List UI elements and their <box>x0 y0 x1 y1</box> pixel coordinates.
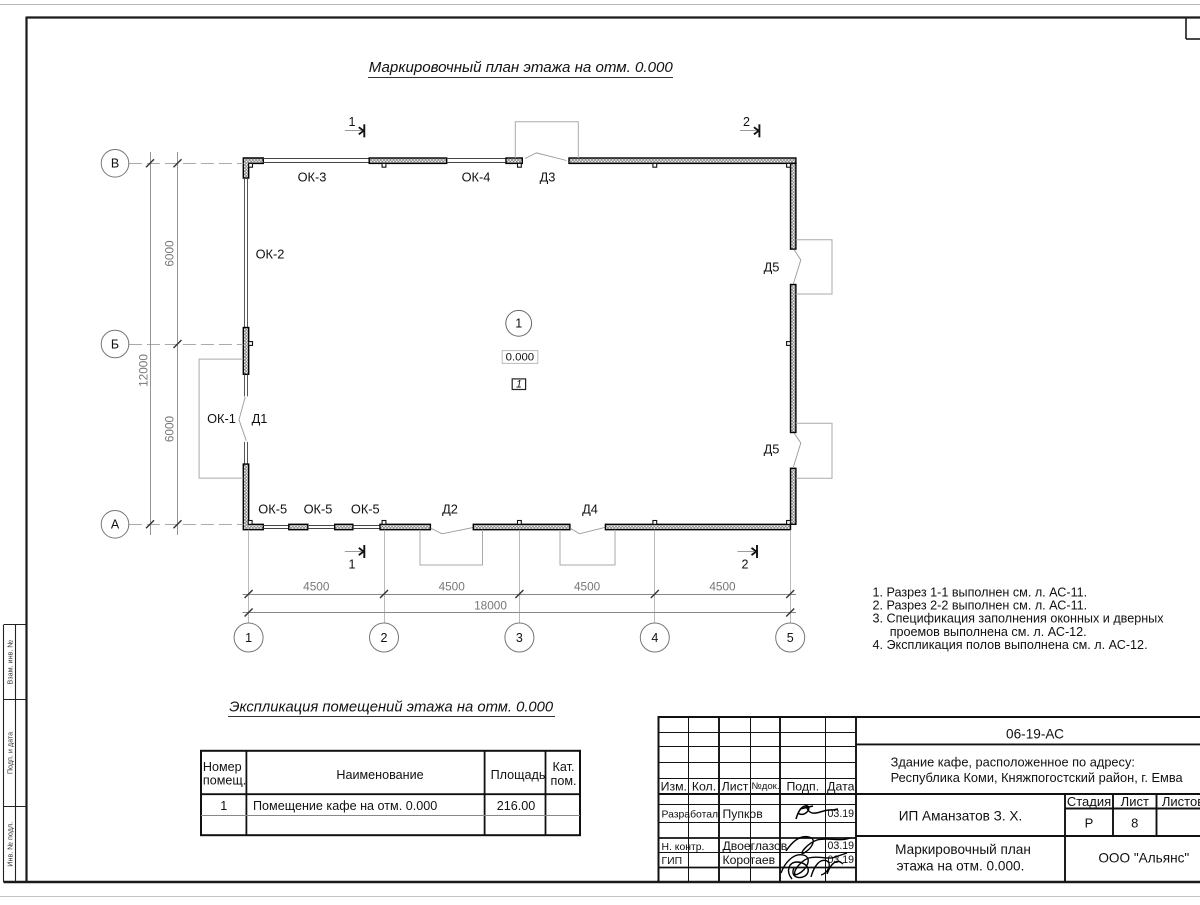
svg-text:Маркировочный план: Маркировочный план <box>895 842 1031 857</box>
svg-text:ОК-4: ОК-4 <box>462 170 491 185</box>
svg-text:ОК-5: ОК-5 <box>351 502 380 517</box>
svg-text:Экспликация помещений этажа на: Экспликация помещений этажа на отм. 0.00… <box>229 700 554 716</box>
svg-text:ОК-5: ОК-5 <box>258 502 287 517</box>
svg-text:Стадия: Стадия <box>1067 794 1111 809</box>
svg-text:Листов: Листов <box>1162 794 1200 809</box>
svg-text:4500: 4500 <box>439 580 466 594</box>
svg-text:5: 5 <box>787 631 794 645</box>
svg-text:1: 1 <box>515 317 522 331</box>
svg-text:ИП Аманзатов З. Х.: ИП Аманзатов З. Х. <box>899 809 1023 824</box>
svg-text:Разработал: Разработал <box>662 809 719 821</box>
svg-text:4. Экспликация полов выполнена: 4. Экспликация полов выполнена см. л. АС… <box>873 638 1148 652</box>
svg-text:2: 2 <box>381 631 388 645</box>
svg-text:3. Спецификация заполнения око: 3. Спецификация заполнения оконных и две… <box>873 612 1165 626</box>
svg-text:3: 3 <box>516 631 523 645</box>
svg-text:А: А <box>111 518 120 532</box>
svg-text:ОК-5: ОК-5 <box>304 502 333 517</box>
svg-text:Д5: Д5 <box>764 260 780 275</box>
svg-text:Подп. и дата: Подп. и дата <box>5 732 14 774</box>
svg-text:Д3: Д3 <box>540 170 556 185</box>
svg-text:6000: 6000 <box>163 240 177 267</box>
svg-text:Площадь: Площадь <box>491 768 546 782</box>
svg-text:Лист: Лист <box>722 779 749 793</box>
svg-text:1. Разрез 1-1 выполнен см. л.: 1. Разрез 1-1 выполнен см. л. АС-11. <box>873 585 1088 599</box>
svg-text:Подп.: Подп. <box>786 779 819 793</box>
svg-text:ГИП: ГИП <box>662 856 683 867</box>
svg-text:06-19-АС: 06-19-АС <box>1006 727 1064 742</box>
svg-text:1: 1 <box>349 558 356 572</box>
svg-text:Инв. № подл.: Инв. № подл. <box>5 822 14 867</box>
svg-text:2: 2 <box>743 115 750 129</box>
svg-text:Дата: Дата <box>827 779 854 793</box>
svg-text:проемов выполнена см. л. АС-12: проемов выполнена см. л. АС-12. <box>890 625 1087 639</box>
svg-text:03.19: 03.19 <box>828 840 855 852</box>
svg-text:2: 2 <box>742 558 749 572</box>
svg-text:4500: 4500 <box>709 580 736 594</box>
svg-text:помещ.: помещ. <box>203 774 246 788</box>
svg-text:4: 4 <box>651 631 658 645</box>
svg-text:Республика Коми, Княжпогостски: Республика Коми, Княжпогостский район, г… <box>891 770 1184 785</box>
svg-text:Маркировочный план этажа на от: Маркировочный план этажа на отм. 0.000 <box>369 59 674 76</box>
svg-text:ОК-1: ОК-1 <box>207 411 236 426</box>
svg-text:Кат.: Кат. <box>553 760 575 774</box>
svg-text:Б: Б <box>111 337 119 351</box>
svg-text:Лист: Лист <box>1121 794 1149 809</box>
svg-text:1: 1 <box>516 379 522 391</box>
svg-text:В: В <box>111 157 119 171</box>
svg-text:этажа на отм. 0.000.: этажа на отм. 0.000. <box>897 859 1025 874</box>
svg-text:пом.: пом. <box>551 774 577 788</box>
svg-text:0.000: 0.000 <box>506 351 535 363</box>
svg-text:Коротаев: Коротаев <box>723 853 776 867</box>
svg-text:Д2: Д2 <box>442 502 458 517</box>
svg-text:ОК-2: ОК-2 <box>256 247 285 262</box>
svg-text:1: 1 <box>220 799 227 813</box>
svg-text:2. Разрез 2-2 выполнен см. л.: 2. Разрез 2-2 выполнен см. л. АС-11. <box>873 599 1088 613</box>
svg-text:Изм.: Изм. <box>661 779 687 793</box>
svg-text:12000: 12000 <box>137 354 151 387</box>
svg-text:6000: 6000 <box>163 415 177 442</box>
svg-text:216.00: 216.00 <box>497 799 536 813</box>
svg-text:Номер: Номер <box>203 760 242 774</box>
svg-text:8: 8 <box>1131 816 1138 831</box>
svg-text:Д5: Д5 <box>764 442 780 457</box>
svg-text:ОК-3: ОК-3 <box>298 170 327 185</box>
svg-text:Наименование: Наименование <box>336 768 423 782</box>
svg-text:1: 1 <box>245 631 252 645</box>
svg-text:ООО "Альянс": ООО "Альянс" <box>1098 851 1189 866</box>
svg-text:Пупков: Пупков <box>723 807 763 821</box>
svg-text:Двоеглазов: Двоеглазов <box>723 839 788 853</box>
svg-text:18000: 18000 <box>474 599 507 613</box>
svg-text:Взам. инв. №: Взам. инв. № <box>5 640 14 685</box>
svg-text:Здание кафе, расположенное по: Здание кафе, расположенное по адресу: <box>891 755 1135 770</box>
svg-text:1: 1 <box>349 115 356 129</box>
svg-text:Р: Р <box>1085 816 1094 831</box>
svg-text:4500: 4500 <box>303 580 330 594</box>
svg-text:4500: 4500 <box>574 580 601 594</box>
svg-text:Д4: Д4 <box>582 502 598 517</box>
svg-text:Д1: Д1 <box>252 411 268 426</box>
svg-text:Кол.: Кол. <box>692 779 716 793</box>
svg-text:Н. контр.: Н. контр. <box>662 842 705 853</box>
svg-text:№док.: №док. <box>751 781 779 792</box>
svg-text:Помещение кафе на отм. 0.000: Помещение кафе на отм. 0.000 <box>253 799 437 813</box>
